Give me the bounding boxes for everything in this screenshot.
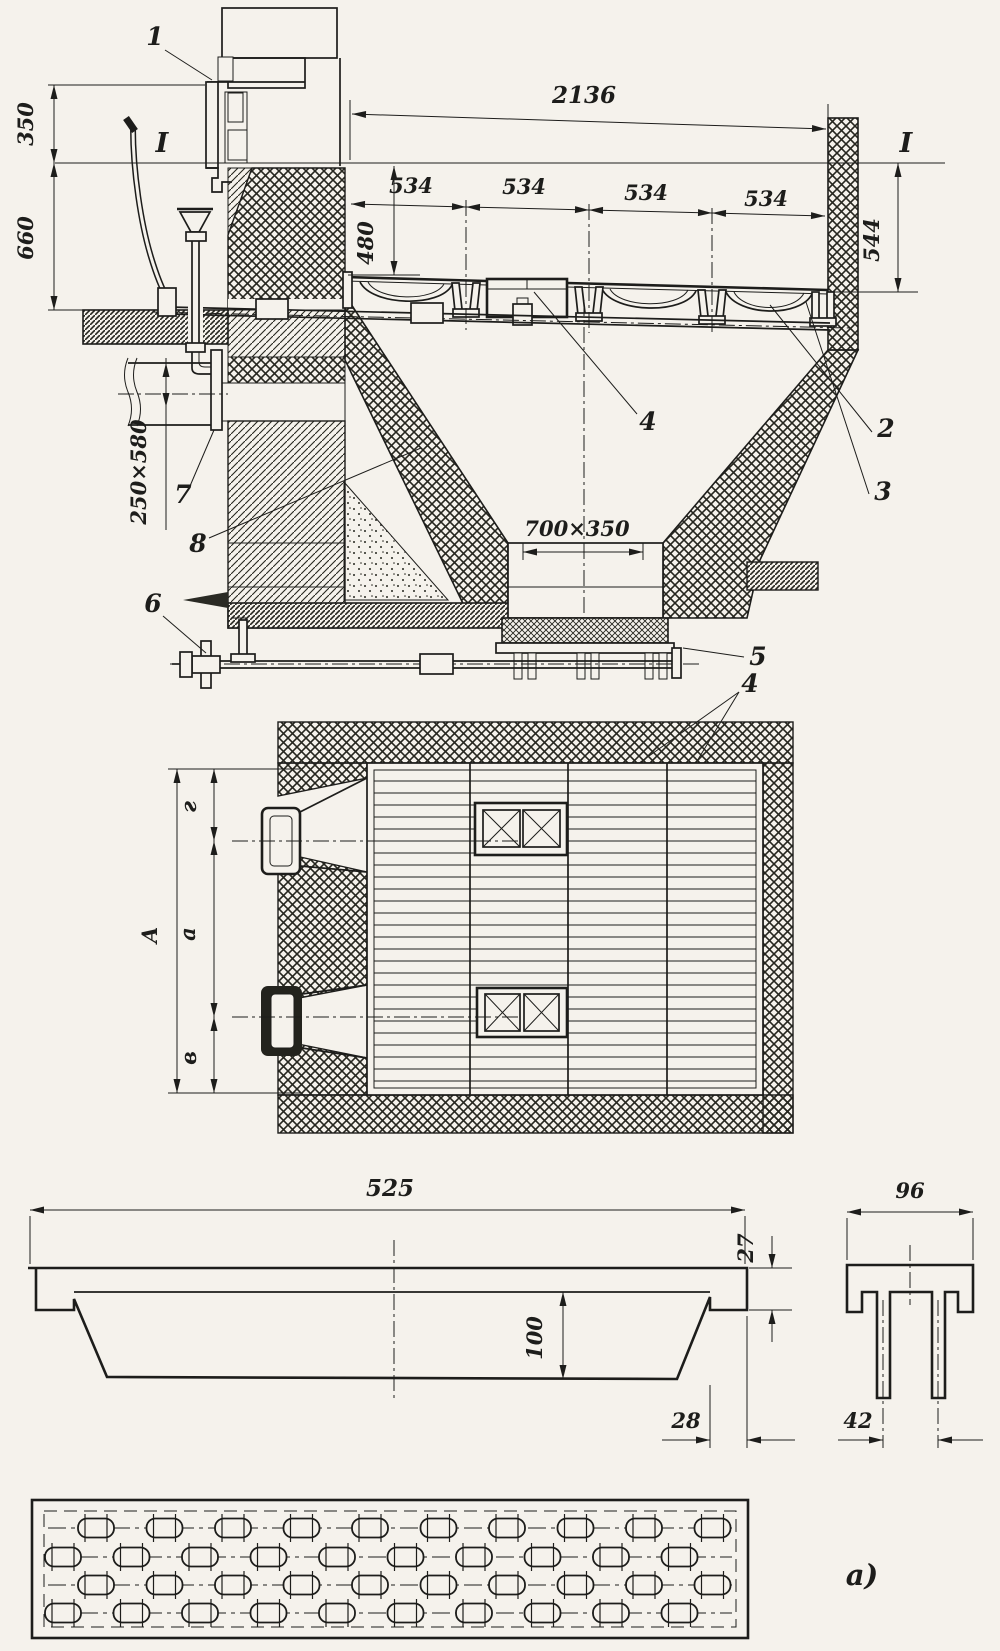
- dim-28-label: 28: [670, 1408, 701, 1433]
- bar-end-view: 96 42: [838, 1178, 983, 1448]
- dim-2136: 2136: [350, 82, 828, 160]
- hopper: [496, 300, 674, 679]
- drawing-canvas: 350 660 I I 2136 534 534 534 534 480 544: [0, 0, 1000, 1651]
- grate-slot: [182, 1548, 218, 1567]
- dim-534-2-label: 534: [502, 174, 546, 199]
- section-mark-right: I: [899, 128, 914, 159]
- grate-slot: [593, 1548, 629, 1567]
- grate-slot: [456, 1604, 492, 1623]
- callout-2: 2: [876, 414, 894, 443]
- grate-plan-a: а): [32, 1500, 878, 1638]
- grate-slot: [78, 1576, 114, 1595]
- grate-slot: [558, 1576, 594, 1595]
- dim-525: 525: [30, 1175, 745, 1264]
- grate-slot: [662, 1604, 698, 1623]
- callout-4-plan: 4: [741, 669, 758, 698]
- grate-slot: [319, 1548, 355, 1567]
- grate-slot: [662, 1548, 698, 1567]
- dim-700x350-label: 700×350: [524, 516, 630, 541]
- grate-slot: [147, 1576, 183, 1595]
- grate-slot: [626, 1576, 662, 1595]
- dim-left-chain: 350 660: [13, 85, 945, 310]
- dim-544-label: 544: [859, 218, 884, 262]
- dim-2136-label: 2136: [551, 82, 616, 109]
- dim-100-label: 100: [522, 1316, 547, 1360]
- grate-slot: [421, 1519, 457, 1538]
- grate-slot: [45, 1548, 81, 1567]
- grate-slot: [45, 1604, 81, 1623]
- grate-slot: [388, 1604, 424, 1623]
- dim-525-label: 525: [366, 1175, 414, 1202]
- damper: [172, 641, 220, 688]
- dim-534-chain: 534 534 534 534: [351, 173, 825, 216]
- grate-slot: [695, 1519, 731, 1538]
- callout-4-section: 4: [639, 407, 656, 436]
- dim-350-label: 350: [13, 102, 38, 146]
- callout-1: 1: [146, 22, 163, 51]
- dim-250x580: 250×580: [126, 358, 166, 530]
- dim-250x580-label: 250×580: [126, 419, 151, 526]
- callout-8: 8: [188, 529, 206, 558]
- grate-slot: [284, 1576, 320, 1595]
- plan-xbox-2: [477, 988, 567, 1037]
- bar-side-view: 525 27 100 28: [28, 1175, 795, 1448]
- grate-slot: [456, 1548, 492, 1567]
- grate-slot: [525, 1548, 561, 1567]
- view-a-label: а): [846, 1558, 879, 1592]
- grate-slot: [182, 1604, 218, 1623]
- callout-3: 3: [874, 477, 891, 506]
- grate-slot: [114, 1548, 150, 1567]
- grate-slot: [626, 1519, 662, 1538]
- dim-g-label: г: [176, 801, 201, 813]
- dim-a-label: a: [175, 927, 200, 941]
- grate-box-support: [487, 279, 567, 325]
- grate-slot: [695, 1576, 731, 1595]
- screw-spindle: [177, 209, 213, 374]
- grate-slot: [251, 1604, 287, 1623]
- grate-slot: [593, 1604, 629, 1623]
- dim-534-4-label: 534: [744, 186, 788, 211]
- dim-v-label: в: [176, 1051, 201, 1065]
- grate-slot: [319, 1604, 355, 1623]
- grate-slot: [421, 1576, 457, 1595]
- grate-slot: [215, 1519, 251, 1538]
- pipe-250x580: [118, 350, 228, 430]
- dim-534-3-label: 534: [624, 180, 668, 205]
- right-footing: [747, 562, 818, 590]
- grate-slot: [284, 1519, 320, 1538]
- grate-slot: [147, 1519, 183, 1538]
- grate-slot: [489, 1519, 525, 1538]
- dim-42: 42: [838, 1408, 983, 1440]
- drawing-sheet: 350 660 I I 2136 534 534 534 534 480 544: [0, 0, 1000, 1651]
- dim-96-label: 96: [895, 1178, 925, 1203]
- grate-slot: [352, 1576, 388, 1595]
- grate-slot: [489, 1576, 525, 1595]
- dim-534-1-label: 534: [389, 173, 433, 198]
- dim-A-label: A: [137, 927, 162, 945]
- dim-480-label: 480: [353, 221, 378, 265]
- plan-view: A г a в: [137, 722, 793, 1133]
- callout-7: 7: [174, 480, 192, 509]
- grate-slot: [215, 1576, 251, 1595]
- grate-slot: [388, 1548, 424, 1567]
- grate-slot: [352, 1519, 388, 1538]
- grate-slot: [525, 1604, 561, 1623]
- grate-slot: [114, 1604, 150, 1623]
- grate-slot: [251, 1548, 287, 1567]
- grate-slot: [78, 1519, 114, 1538]
- hopper-hangers: [514, 653, 667, 679]
- callout-6: 6: [144, 589, 161, 618]
- hopper-grid: [496, 618, 674, 653]
- plan-xbox-1: [475, 803, 567, 855]
- callout-5: 5: [749, 642, 766, 671]
- dim-42-label: 42: [843, 1408, 872, 1433]
- grate-slot: [558, 1519, 594, 1538]
- section-mark-left: I: [155, 128, 170, 159]
- dim-660-label: 660: [13, 216, 38, 260]
- dim-27-label: 27: [733, 1233, 758, 1264]
